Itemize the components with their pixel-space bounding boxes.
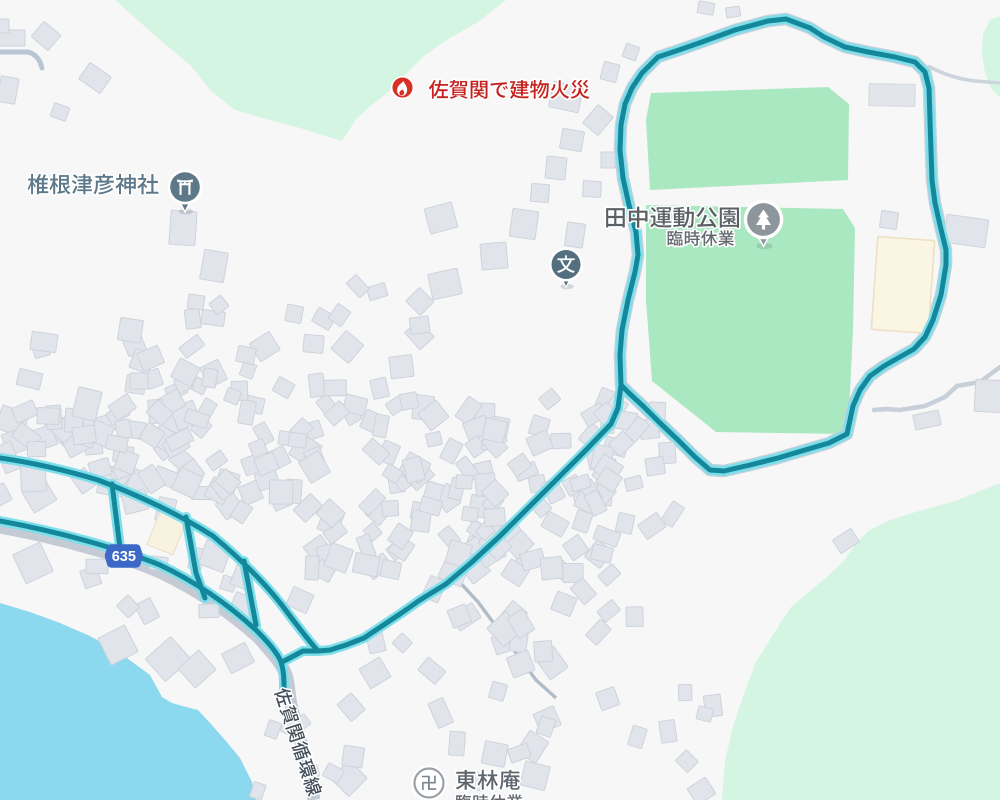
svg-text:635: 635 [112, 549, 136, 565]
